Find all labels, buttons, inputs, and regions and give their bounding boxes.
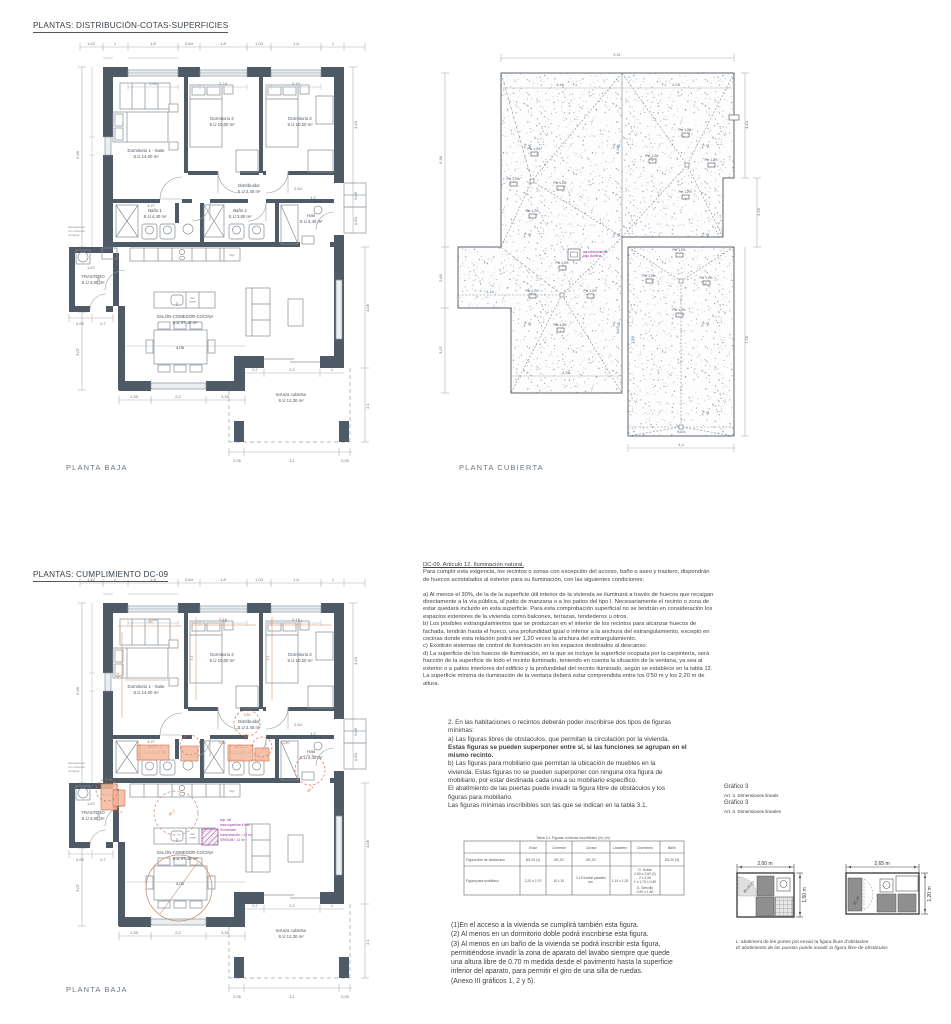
svg-text:4,44: 4,44 <box>744 120 749 129</box>
svg-text:3,1: 3,1 <box>289 458 295 463</box>
svg-text:Ø1,20: Ø1,20 <box>586 858 595 862</box>
svg-text:1,8: 1,8 <box>220 41 226 46</box>
svg-text:Baño 2: Baño 2 <box>233 208 247 213</box>
svg-text:9,31: 9,31 <box>613 52 622 57</box>
svg-text:Lavadero: Lavadero <box>613 846 627 850</box>
svg-text:Pte 1.2%: Pte 1.2% <box>679 128 692 132</box>
svg-text:sup. útil: sup. útil <box>220 818 231 822</box>
svg-text:1,10 x 1,20: 1,10 x 1,20 <box>612 879 629 883</box>
svg-text:S.Ú 3,80 m²: S.Ú 3,80 m² <box>82 280 105 285</box>
svg-text:S.Ú 10,00 m²: S.Ú 10,00 m² <box>287 122 313 127</box>
svg-text:1,8: 1,8 <box>150 41 156 46</box>
svg-text:Dormitorio 1 - Suite: Dormitorio 1 - Suite <box>127 148 165 153</box>
svg-text:Figura libre de obstáculos: Figura libre de obstáculos <box>466 858 505 862</box>
svg-text:6,98: 6,98 <box>75 150 80 159</box>
svg-text:Dormitorio 3: Dormitorio 3 <box>288 116 312 121</box>
svg-text:0,35: 0,35 <box>341 458 350 463</box>
svg-text:2,6: 2,6 <box>116 673 120 678</box>
svg-text:Cocina: Cocina <box>586 846 597 850</box>
svg-text:Pte 1.2%: Pte 1.2% <box>646 154 659 158</box>
svg-text:Pte 1.2%: Pte 1.2% <box>554 181 567 185</box>
svg-text:Ø1,20 (1): Ø1,20 (1) <box>526 858 540 862</box>
svg-text:Pte 1.2%: Pte 1.2% <box>705 158 718 162</box>
svg-text:0,80: 0,80 <box>283 741 290 745</box>
svg-text:4,08: 4,08 <box>365 303 370 312</box>
svg-text:S.Ú 14,00 m²: S.Ú 14,00 m² <box>133 154 159 159</box>
svg-text:Pte 1.2%: Pte 1.2% <box>556 261 569 265</box>
svg-text:2,59: 2,59 <box>756 207 761 216</box>
svg-text:5,64: 5,64 <box>677 429 686 434</box>
svg-text:0,84: 0,84 <box>185 41 194 46</box>
svg-text:Pte 1.2%: Pte 1.2% <box>643 274 656 278</box>
svg-text:Baño 1: Baño 1 <box>148 208 162 213</box>
svg-text:Ø1,2: Ø1,2 <box>306 785 314 793</box>
svg-text:4,36: 4,36 <box>562 370 571 375</box>
svg-text:0,80: 0,80 <box>219 741 226 745</box>
svg-text:2,65: 2,65 <box>149 81 158 86</box>
svg-text:lav.: lav. <box>588 880 593 884</box>
svg-text:Estar: Estar <box>529 846 538 850</box>
svg-text:1,20 m: 1,20 m <box>927 886 933 901</box>
svg-text:il·luminació: il·luminació <box>220 828 236 832</box>
svg-text:1,67: 1,67 <box>87 265 96 270</box>
svg-text:1,50 m: 1,50 m <box>802 887 808 902</box>
svg-text:2,64: 2,64 <box>294 186 303 191</box>
svg-text:3,4: 3,4 <box>222 619 227 623</box>
svg-text:comprobación > 12 m²: comprobación > 12 m² <box>220 833 252 837</box>
svg-text:2,19: 2,19 <box>292 81 301 86</box>
svg-text:4,16: 4,16 <box>486 289 495 294</box>
svg-text:1,2: 1,2 <box>118 810 123 814</box>
svg-text:0,88: 0,88 <box>353 191 358 200</box>
svg-text:0,82: 0,82 <box>244 734 248 741</box>
svg-text:contigua: contigua <box>68 233 80 237</box>
svg-text:Figura para mobiliario: Figura para mobiliario <box>466 879 499 883</box>
svg-text:Dormitorio: Dormitorio <box>637 846 653 850</box>
svg-text:0,80: 0,80 <box>244 713 251 717</box>
svg-text:1 x 1,70 x 0,80: 1 x 1,70 x 0,80 <box>634 880 656 884</box>
svg-text:Pte 1.2%: Pte 1.2% <box>554 323 567 327</box>
svg-text:Pte 1.2%: Pte 1.2% <box>584 289 597 293</box>
svg-text:S.Ú 2,40 m²: S.Ú 2,40 m² <box>238 189 261 194</box>
svg-text:TRASTERO: TRASTERO <box>81 274 105 279</box>
svg-text:Distribuidor: Distribuidor <box>238 183 260 188</box>
svg-text:4,4: 4,4 <box>266 656 270 661</box>
svg-text:S.Ú 12,30 m²: S.Ú 12,30 m² <box>278 398 304 403</box>
svg-text:0,90 x 1,80: 0,90 x 1,80 <box>637 890 654 894</box>
svg-text:Ø1,2: Ø1,2 <box>168 808 176 816</box>
svg-text:4,44: 4,44 <box>353 120 358 129</box>
svg-text:ceram: ceram <box>189 301 196 304</box>
svg-text:Baño: Baño <box>668 846 676 850</box>
svg-text:1,8: 1,8 <box>293 41 299 46</box>
svg-text:bajo cubierta: bajo cubierta <box>583 254 601 258</box>
svg-text:Pte 1.2%: Pte 1.2% <box>526 209 539 213</box>
svg-text:3,6: 3,6 <box>148 620 153 624</box>
svg-text:terraza cubierta: terraza cubierta <box>276 392 306 397</box>
svg-text:área superficie il·lum.: área superficie il·lum. <box>220 823 250 827</box>
svg-text:Pte 1.2%: Pte 1.2% <box>528 147 541 151</box>
svg-text:2,65 m: 2,65 m <box>874 861 889 867</box>
svg-text:2,19: 2,19 <box>219 81 228 86</box>
svg-text:2,2: 2,2 <box>175 394 181 399</box>
svg-text:Comedor: Comedor <box>552 846 567 850</box>
svg-text:1,35: 1,35 <box>130 394 139 399</box>
svg-text:30%SÚtil < 12 m²: 30%SÚtil < 12 m² <box>220 837 245 842</box>
svg-text:3,4: 3,4 <box>298 619 303 623</box>
svg-text:frigo: frigo <box>229 253 235 257</box>
svg-text:7,78: 7,78 <box>744 335 749 344</box>
svg-text:0,50: 0,50 <box>353 216 358 225</box>
svg-text:Dormitorio 2: Dormitorio 2 <box>210 116 234 121</box>
svg-text:4,05: 4,05 <box>672 82 681 87</box>
svg-text:S.Ú 4,40 m²: S.Ú 4,40 m² <box>300 219 323 224</box>
svg-text:3,07: 3,07 <box>75 347 80 356</box>
svg-text:S.Ú 3,80 m²: S.Ú 3,80 m² <box>229 214 252 219</box>
svg-text:Pte 1.2%: Pte 1.2% <box>700 276 713 280</box>
svg-text:2,1: 2,1 <box>365 402 370 408</box>
svg-text:6,38: 6,38 <box>438 155 443 164</box>
svg-text:Ø 1,10: Ø 1,10 <box>554 879 564 883</box>
svg-text:6,26: 6,26 <box>615 145 620 154</box>
svg-text:2,89: 2,89 <box>438 273 443 282</box>
svg-text:S.Ú 4,40 m²: S.Ú 4,40 m² <box>144 214 167 219</box>
svg-text:SALÓN-COMEDOR-COCINA: SALÓN-COMEDOR-COCINA <box>157 314 214 319</box>
svg-text:Pte 1.2%: Pte 1.2% <box>673 308 686 312</box>
svg-text:0,92: 0,92 <box>76 321 85 326</box>
svg-text:3,07: 3,07 <box>438 345 443 354</box>
svg-text:Ø1,20 (3): Ø1,20 (3) <box>665 858 679 862</box>
svg-text:0,35: 0,35 <box>233 458 242 463</box>
svg-text:1,35: 1,35 <box>221 394 230 399</box>
svg-text:5,45: 5,45 <box>615 325 620 334</box>
svg-text:1,42: 1,42 <box>87 41 96 46</box>
svg-text:Pte 1.2%: Pte 1.2% <box>679 190 692 194</box>
svg-text:4,46: 4,46 <box>556 82 565 87</box>
svg-text:Pte 1.2%: Pte 1.2% <box>673 248 686 252</box>
svg-text:Hall: Hall <box>307 213 314 218</box>
svg-text:4,4: 4,4 <box>190 656 194 661</box>
svg-text:Ø1,20: Ø1,20 <box>554 858 563 862</box>
svg-text:S.Ú 10,00 m²: S.Ú 10,00 m² <box>209 122 235 127</box>
svg-text:1,03: 1,03 <box>255 41 264 46</box>
svg-text:S.Ú 37,40 m²: S.Ú 37,40 m² <box>172 320 198 325</box>
svg-text:4,4: 4,4 <box>678 442 684 447</box>
svg-text:0,7: 0,7 <box>100 321 106 326</box>
svg-text:7,58: 7,58 <box>630 335 635 344</box>
svg-text:2,2: 2,2 <box>289 367 295 372</box>
svg-text:Pte 1.2%: Pte 1.2% <box>526 289 539 293</box>
svg-text:Tabla 3.1 Figuras mínimas ins: Tabla 3.1 Figuras mínimas inscribibles (… <box>536 836 610 840</box>
svg-text:2,20 x 2,70: 2,20 x 2,70 <box>525 879 542 883</box>
svg-text:2,00 m: 2,00 m <box>757 861 772 867</box>
svg-text:1: 1 <box>114 41 117 46</box>
svg-text:Pte 1.2%: Pte 1.2% <box>507 177 520 181</box>
svg-text:1: 1 <box>332 41 335 46</box>
